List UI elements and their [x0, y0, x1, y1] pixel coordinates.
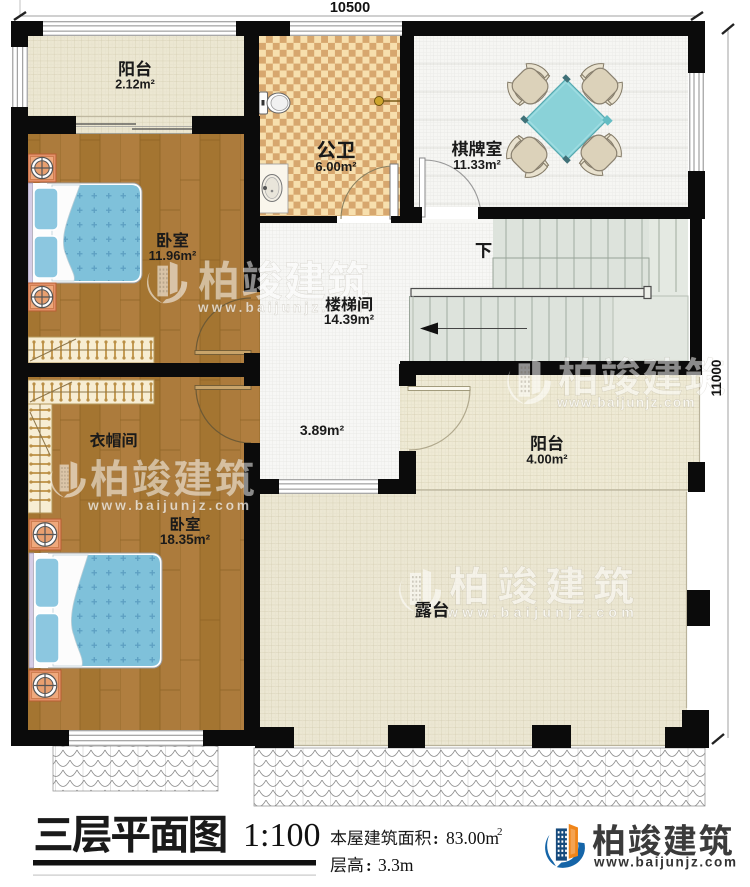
- svg-text:2.12m²: 2.12m²: [115, 77, 155, 91]
- svg-text:www.baijunjz.com: www.baijunjz.com: [593, 855, 738, 870]
- svg-text:www.baijunjz.com: www.baijunjz.com: [556, 395, 696, 410]
- svg-text:6.00m²: 6.00m²: [315, 159, 357, 174]
- svg-text:10500: 10500: [330, 0, 370, 16]
- svg-text::: :: [433, 829, 439, 848]
- svg-text:18.35m²: 18.35m²: [160, 532, 211, 547]
- svg-text:www.baijunjz.com: www.baijunjz.com: [87, 498, 252, 513]
- svg-text:11000: 11000: [709, 360, 724, 397]
- svg-text::: :: [366, 856, 372, 875]
- svg-text:14.39m²: 14.39m²: [324, 312, 375, 327]
- svg-text:11.33m²: 11.33m²: [453, 157, 501, 172]
- svg-text:1:100: 1:100: [243, 817, 320, 854]
- svg-text:11.96m²: 11.96m²: [149, 248, 197, 263]
- svg-text:3.3m: 3.3m: [378, 855, 414, 875]
- svg-text:www.baijunjz.com: www.baijunjz.com: [446, 604, 638, 620]
- svg-text:83.00m: 83.00m: [446, 828, 499, 848]
- svg-text:2: 2: [497, 826, 503, 838]
- svg-text:3.89m²: 3.89m²: [300, 422, 345, 438]
- svg-text:4.00m²: 4.00m²: [526, 451, 568, 466]
